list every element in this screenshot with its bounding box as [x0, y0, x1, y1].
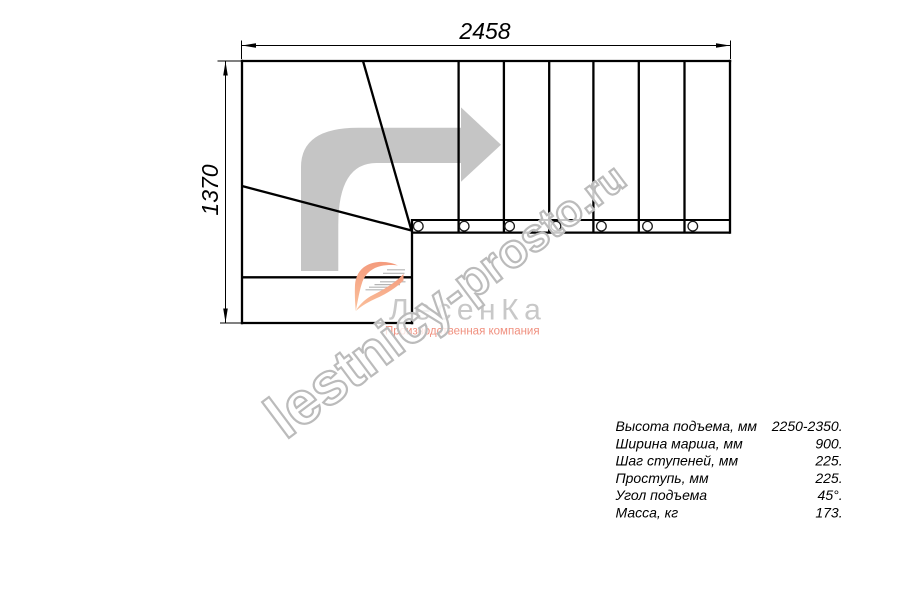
svg-text:Угол подъема: Угол подъема: [615, 487, 708, 503]
svg-text:225.: 225.: [814, 453, 842, 469]
svg-text:Ширина марша, мм: Ширина марша, мм: [616, 435, 744, 451]
svg-text:Высота подъема, мм: Высота подъема, мм: [616, 418, 758, 434]
svg-text:Шаг ступеней, мм: Шаг ступеней, мм: [616, 453, 739, 469]
svg-text:173.: 173.: [815, 505, 842, 521]
svg-text:2250-2350.: 2250-2350.: [771, 418, 843, 434]
svg-text:Проступь, мм: Проступь, мм: [616, 470, 710, 486]
svg-text:225.: 225.: [814, 470, 842, 486]
svg-text:Масса, кг: Масса, кг: [616, 505, 679, 521]
svg-text:1370: 1370: [197, 164, 223, 215]
svg-text:2458: 2458: [458, 18, 510, 44]
svg-text:45°.: 45°.: [818, 487, 843, 503]
svg-text:900.: 900.: [815, 435, 842, 451]
